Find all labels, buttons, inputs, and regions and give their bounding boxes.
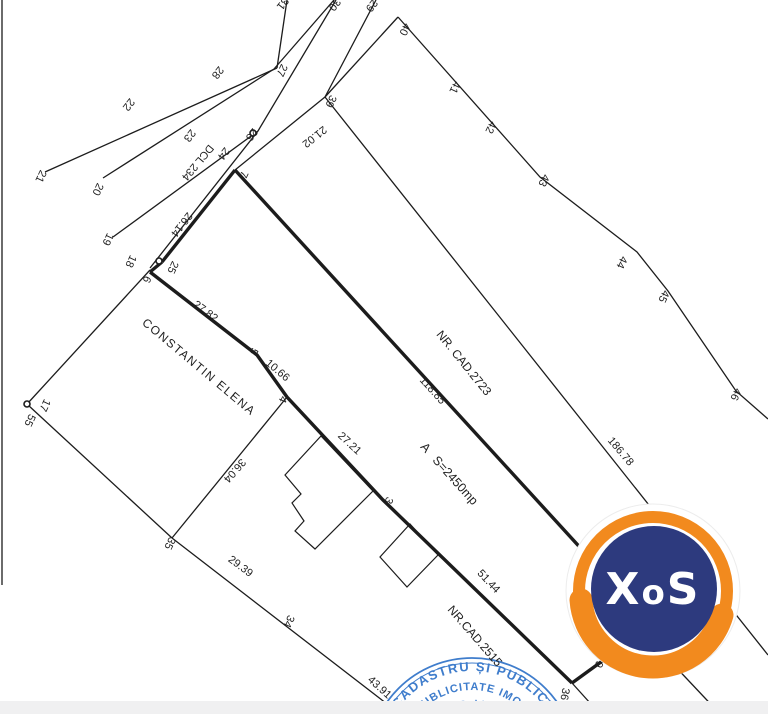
building-footprint: [380, 524, 438, 587]
survey-point-markers: [24, 130, 256, 407]
xos-logo: XoS: [566, 504, 740, 678]
plan-drawing: CADASTRU ȘI PUBLICIPUBLICITATE IMOBși Pu…: [0, 0, 768, 714]
plan-label: 36: [558, 687, 571, 701]
building-footprint: [285, 436, 373, 549]
scan-bottom-band: [0, 701, 768, 714]
building-footprints: [285, 436, 438, 587]
cadastral-plan-scan: CADASTRU ȘI PUBLICIPUBLICITATE IMOBși Pu…: [0, 0, 768, 714]
